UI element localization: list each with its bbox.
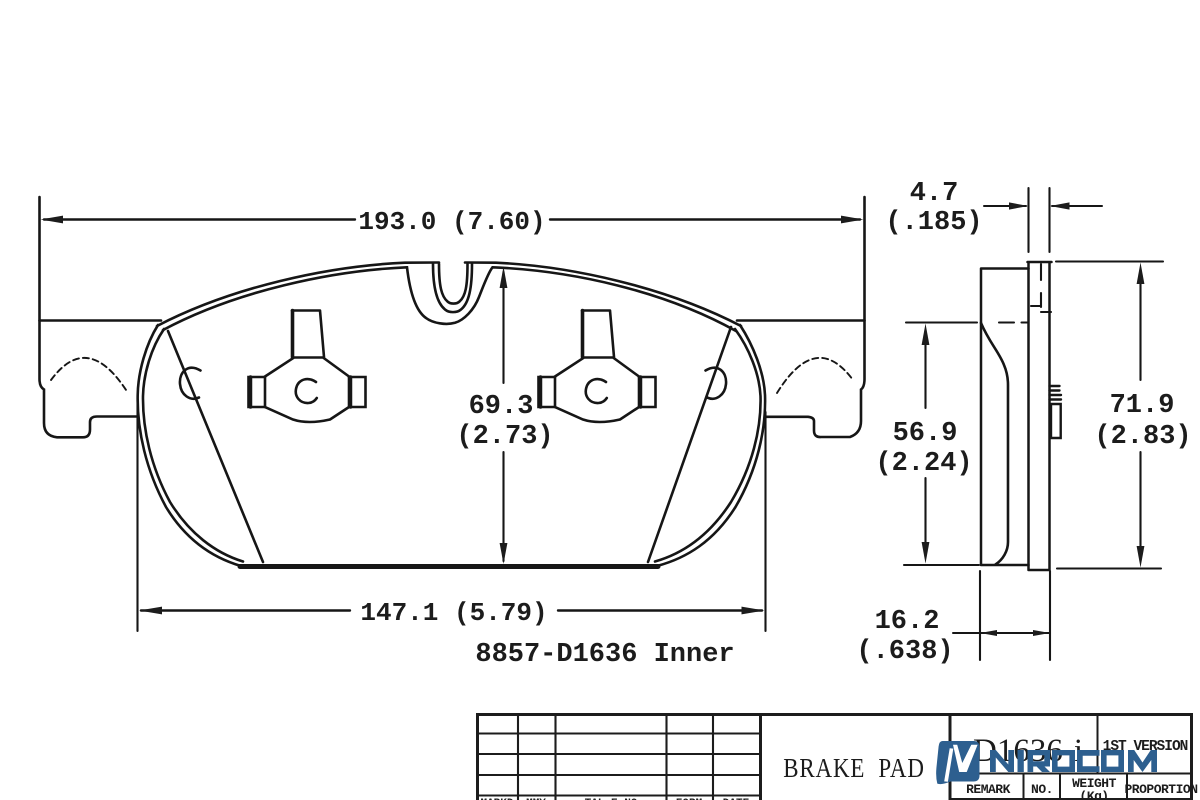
svg-text:147.1 (5.79): 147.1 (5.79) — [360, 598, 547, 628]
svg-text:8857-D1636 Inner: 8857-D1636 Inner — [475, 640, 734, 670]
svg-text:PROPORTION: PROPORTION — [1124, 782, 1197, 797]
svg-text:NO.: NO. — [1031, 782, 1053, 797]
svg-text:4.7: 4.7 — [910, 179, 959, 209]
svg-text:193.0 (7.60): 193.0 (7.60) — [358, 207, 545, 237]
svg-text:(2.83): (2.83) — [1094, 422, 1191, 452]
svg-text:(2.73): (2.73) — [456, 422, 553, 452]
svg-text:56.9: 56.9 — [893, 419, 958, 449]
svg-text:(2.24): (2.24) — [875, 449, 972, 479]
svg-text:71.9: 71.9 — [1110, 391, 1175, 421]
svg-text:REMARK: REMARK — [966, 782, 1011, 797]
svg-text:(Kg): (Kg) — [1079, 789, 1108, 800]
svg-text:(.638): (.638) — [856, 637, 953, 667]
svg-text:BRAKE PAD: BRAKE PAD — [783, 754, 925, 783]
svg-text:(.185): (.185) — [885, 208, 982, 238]
svg-text:16.2: 16.2 — [875, 607, 940, 637]
svg-text:69.3: 69.3 — [469, 392, 534, 422]
